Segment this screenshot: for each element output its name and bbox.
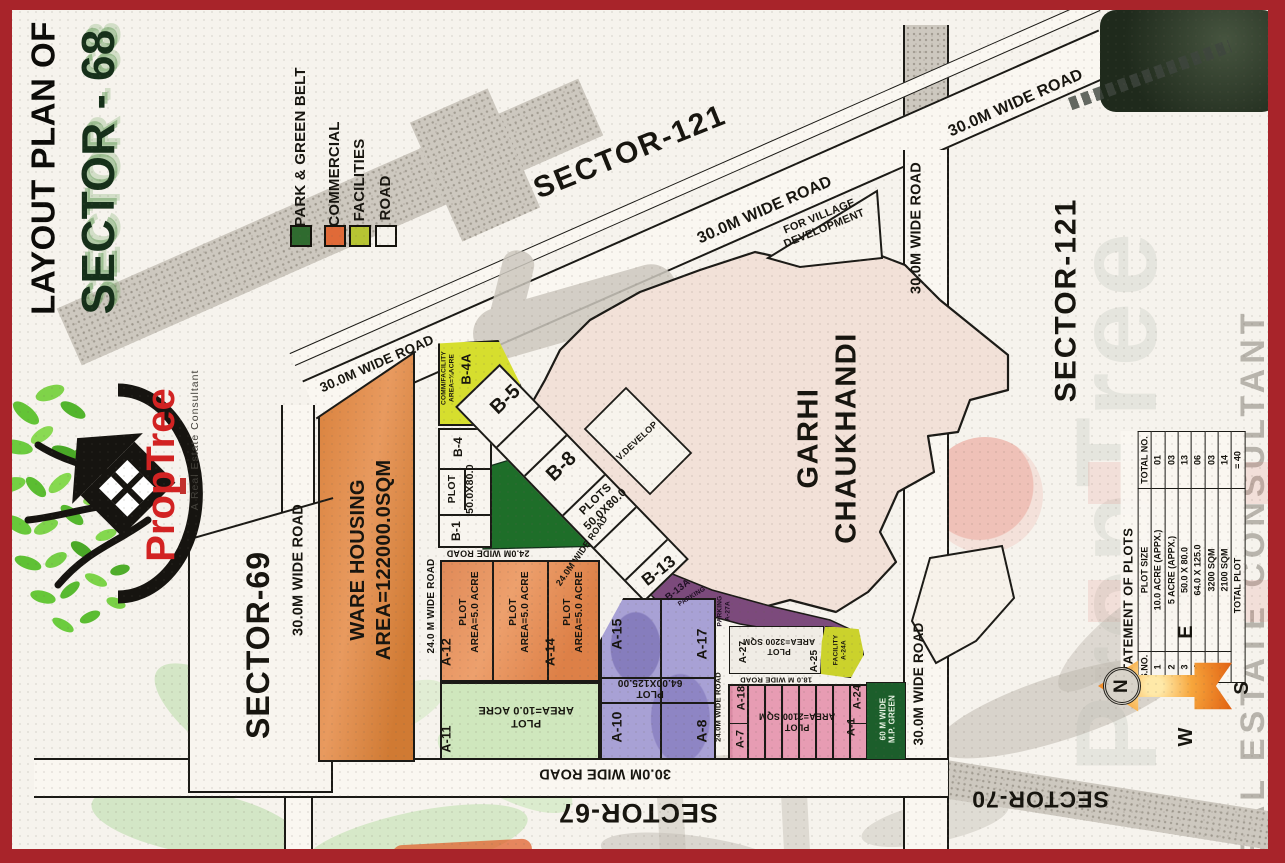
page-title-line2: SECTOR - 68 bbox=[71, 29, 125, 314]
compass-s: S bbox=[1231, 681, 1255, 695]
label-50x80: 50.0X80.0 bbox=[464, 464, 476, 514]
table-row: 25 ACRE (APPX.)03 bbox=[1165, 432, 1178, 683]
road-label-18m: 18.0 M WIDE ROAD bbox=[740, 675, 812, 684]
col-total-no: TOTAL NO. bbox=[1138, 432, 1151, 489]
label-sector-70: SECTOR-70 bbox=[971, 785, 1109, 812]
compass-e: E bbox=[1175, 625, 1199, 639]
label-area10: PLOT AREA=10.0 ACRE bbox=[478, 703, 574, 729]
label-area5: PLOT AREA=5.0 ACRE bbox=[508, 571, 532, 652]
label-a14: A-14 bbox=[544, 638, 559, 666]
label-a7: A-7 bbox=[735, 730, 748, 748]
label-b1: B-1 bbox=[449, 521, 463, 541]
label-facility-a24a: FACILITY A-24A bbox=[832, 635, 847, 666]
label-garhi-chaukhandi: GARHI CHAUKHANDI bbox=[790, 332, 865, 544]
page-title-line1: LAYOUT PLAN OF bbox=[25, 21, 64, 315]
road-label-30m: 30.0M WIDE ROAD bbox=[908, 162, 925, 294]
table-header-row: S.NO. PLOT SIZE TOTAL NO. bbox=[1138, 432, 1151, 683]
legend-swatch-commercial bbox=[324, 225, 346, 247]
label-a8: A-8 bbox=[694, 719, 711, 742]
legend-swatch-facilities bbox=[349, 225, 371, 247]
total-plot-value: = 40 bbox=[1232, 432, 1245, 489]
table-footer-row: TOTAL PLOT = 40 bbox=[1232, 432, 1245, 683]
compass-n: N bbox=[1111, 679, 1133, 693]
legend-label-commercial: COMMERCIAL bbox=[326, 121, 344, 226]
legend-label-facilities: FACILITIES bbox=[351, 139, 369, 222]
label-area5: PLOT AREA=5.0 ACRE bbox=[562, 571, 586, 652]
logo-name: PropTree bbox=[139, 388, 183, 561]
road-label-24m: 24.0M WIDE ROAD bbox=[715, 672, 724, 742]
label-sector-67: SECTOR-67 bbox=[558, 796, 718, 828]
road-label-24m: 24.0M WIDE ROAD bbox=[446, 548, 529, 559]
label-a18: A-18 bbox=[736, 686, 749, 711]
label-b4: B-4 bbox=[451, 437, 465, 457]
label-a25: A-25 bbox=[809, 650, 821, 672]
table-row: 110.0 ACRE (APPX.)01 bbox=[1151, 432, 1164, 683]
red-tick-mark bbox=[180, 478, 186, 494]
label-b4a: B-4A bbox=[458, 353, 473, 384]
legend-label-road: ROAD bbox=[377, 176, 395, 221]
label-a11: A-11 bbox=[440, 725, 455, 752]
road-label-30m: 30.0M WIDE ROAD bbox=[290, 504, 307, 636]
layout-plan-canvas: PropTree REAL ESTATE CONSULTANT bbox=[0, 0, 1285, 863]
table-row: 464.0 X 125.006 bbox=[1192, 432, 1205, 683]
table-row: 350.0 X 80.013 bbox=[1178, 432, 1191, 683]
label-sector-69: SECTOR-69 bbox=[240, 551, 278, 739]
label-64x125: PLOT 64.00X125.00 bbox=[618, 677, 683, 699]
label-a24: A-24 bbox=[852, 685, 865, 710]
legend-label-park: PARK & GREEN BELT bbox=[292, 67, 310, 227]
label-area2100: PLOT AREA=2100 SQM bbox=[759, 711, 835, 732]
road-label-24m: 24.0 M WIDE ROAD bbox=[426, 559, 438, 654]
total-plot-label: TOTAL PLOT bbox=[1232, 489, 1245, 683]
label-a12: A-12 bbox=[440, 638, 455, 666]
road-label-30m: 30.0M WIDE ROAD bbox=[539, 764, 671, 781]
col-plot-size: PLOT SIZE bbox=[1138, 489, 1151, 652]
table-row: 53200 SQM03 bbox=[1205, 432, 1218, 683]
label-area5: PLOT AREA=5.0 ACRE bbox=[458, 571, 482, 652]
table-title: STATEMENT OF PLOTS bbox=[1121, 431, 1136, 681]
label-warehousing: WARE HOUSING AREA=122000.0SQM bbox=[345, 460, 397, 661]
label-mp-green: 60 M WIDE M.P. GREEN bbox=[879, 695, 898, 743]
label-a10: A-10 bbox=[609, 711, 626, 742]
label-a1: A-1 bbox=[846, 718, 859, 736]
table-row: 62100 SQM14 bbox=[1218, 432, 1231, 683]
village-spur-pocket bbox=[912, 546, 1014, 663]
label-a17: A-17 bbox=[694, 628, 711, 659]
road-label-30m: 30.0M WIDE ROAD bbox=[911, 622, 927, 745]
legend-swatch-road bbox=[375, 225, 397, 247]
logo-tagline: A Real Estate Consultant bbox=[189, 370, 201, 511]
statement-of-plots-table: STATEMENT OF PLOTS S.NO. PLOT SIZE TOTAL… bbox=[1121, 431, 1246, 683]
label-a15: A-15 bbox=[609, 618, 626, 649]
label-plot-word: PLOT bbox=[446, 475, 458, 504]
proptree-logo: PropTree A Real Estate Consultant bbox=[0, 335, 203, 665]
label-parking-a27a: PARKING A-27A bbox=[716, 596, 731, 627]
label-area3200: PLOT AREA=3200 SQM bbox=[743, 637, 815, 657]
compass-w: W bbox=[1175, 727, 1199, 746]
label-sector-121-right: SECTOR-121 bbox=[1048, 198, 1083, 403]
legend-swatch-park bbox=[290, 225, 312, 247]
label-b4a-note: COMM/FACILITY AREA=¾ACRE bbox=[440, 351, 455, 405]
